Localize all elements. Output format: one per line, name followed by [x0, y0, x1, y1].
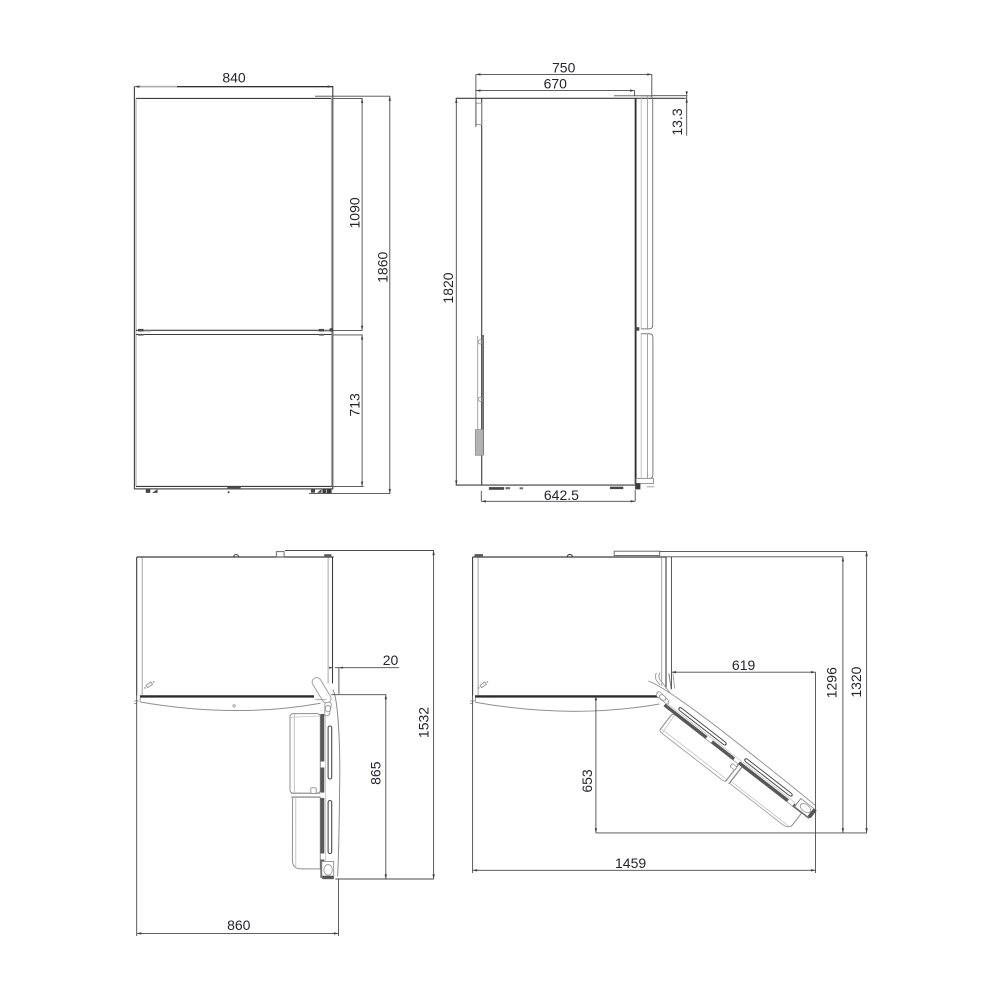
svg-text:750: 750: [552, 59, 576, 75]
svg-text:840: 840: [222, 70, 246, 86]
svg-text:865: 865: [367, 761, 383, 785]
svg-text:1820: 1820: [440, 272, 456, 303]
svg-text:642.5: 642.5: [544, 487, 579, 503]
svg-text:619: 619: [732, 657, 756, 673]
svg-text:1860: 1860: [375, 252, 391, 283]
svg-text:670: 670: [544, 76, 568, 92]
svg-text:860: 860: [227, 917, 251, 933]
svg-text:713: 713: [347, 393, 363, 417]
svg-text:20: 20: [383, 652, 399, 668]
svg-text:1532: 1532: [415, 707, 431, 738]
svg-text:13.3: 13.3: [669, 108, 685, 135]
svg-text:1090: 1090: [347, 197, 363, 228]
svg-text:1459: 1459: [615, 855, 646, 871]
svg-text:653: 653: [579, 769, 595, 793]
svg-text:1296: 1296: [823, 667, 839, 698]
svg-text:1320: 1320: [848, 666, 864, 697]
